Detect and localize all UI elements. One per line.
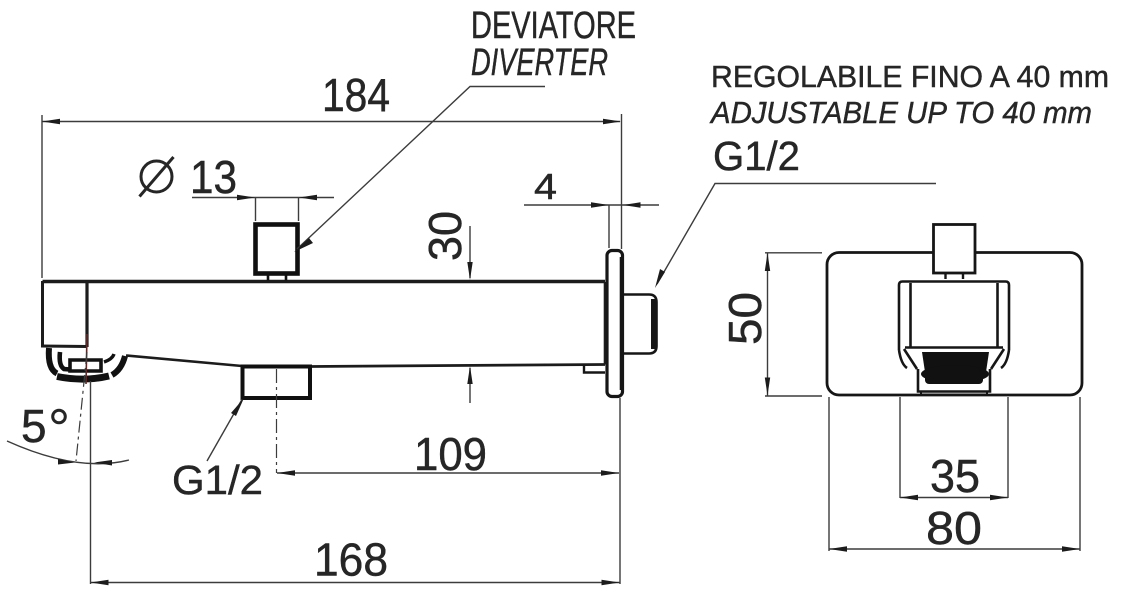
svg-text:G1/2: G1/2: [713, 133, 800, 179]
svg-text:30: 30: [419, 211, 471, 261]
svg-text:4: 4: [534, 166, 557, 207]
svg-text:5: 5: [21, 400, 47, 452]
svg-text:80: 80: [926, 502, 982, 554]
svg-text:G1/2: G1/2: [172, 457, 263, 503]
svg-text:50: 50: [719, 292, 771, 345]
svg-text:DEVIATORE: DEVIATORE: [471, 5, 636, 47]
svg-text:13: 13: [190, 151, 237, 203]
svg-text:168: 168: [314, 534, 388, 586]
svg-text:ADJUSTABLE UP TO 40 mm: ADJUSTABLE UP TO 40 mm: [709, 95, 1092, 130]
svg-text:184: 184: [322, 69, 390, 121]
svg-text:35: 35: [930, 450, 980, 502]
svg-text:DIVERTER: DIVERTER: [471, 42, 608, 84]
svg-text:109: 109: [414, 428, 487, 480]
svg-text:REGOLABILE FINO A 40 mm: REGOLABILE FINO A 40 mm: [711, 59, 1109, 94]
